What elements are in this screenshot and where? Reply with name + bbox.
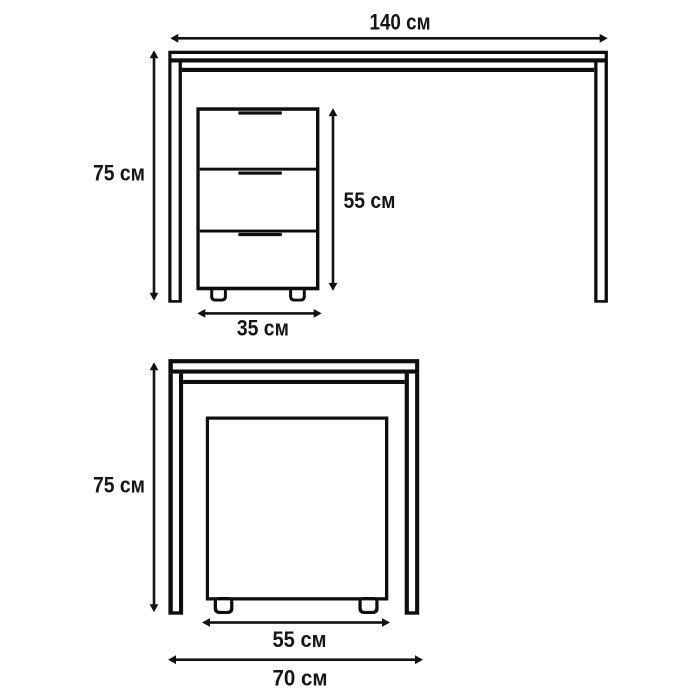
svg-text:55 см: 55 см	[344, 188, 396, 213]
svg-text:55 см: 55 см	[273, 627, 327, 652]
svg-text:35 см: 35 см	[237, 316, 289, 341]
svg-text:75 см: 75 см	[93, 161, 145, 186]
svg-text:140 см: 140 см	[370, 10, 431, 35]
svg-text:70 см: 70 см	[273, 666, 328, 691]
svg-text:75 см: 75 см	[93, 473, 145, 498]
